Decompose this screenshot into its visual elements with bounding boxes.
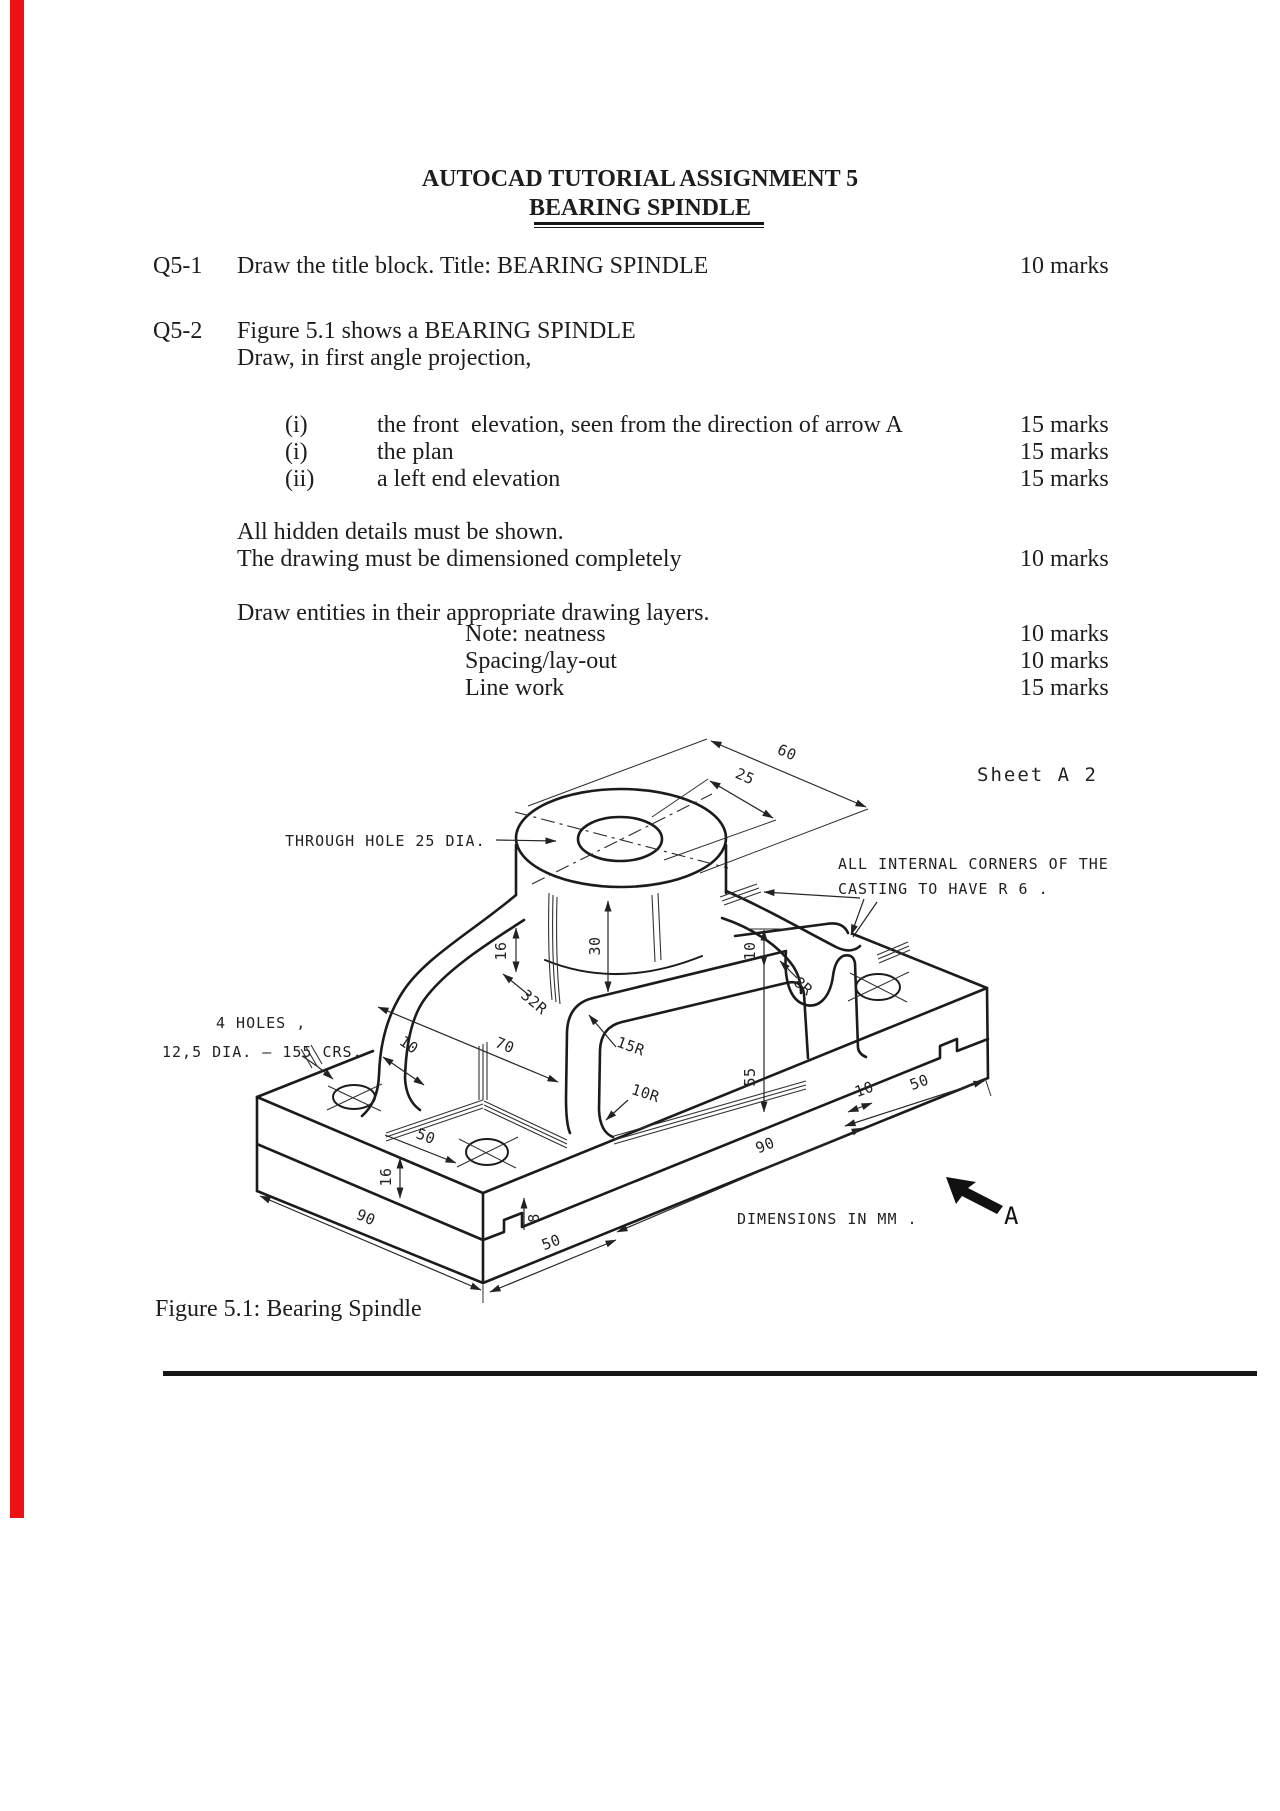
dim-16-base-label: 16 xyxy=(377,1167,395,1186)
dim-50-right-extension xyxy=(985,1078,991,1096)
dim-16-web-label: 16 xyxy=(492,941,510,960)
dim-30-label: 30 xyxy=(586,936,604,955)
arch-inner-outline xyxy=(599,982,808,1137)
cylinder-base-arc xyxy=(545,956,702,974)
dim-90-left-label: 90 xyxy=(354,1205,379,1229)
dim-10-step-label: 10 xyxy=(852,1078,876,1101)
dim-15r-leader xyxy=(589,1015,616,1047)
base-bottom-left-edge xyxy=(257,1191,483,1283)
dim-55-label: 55 xyxy=(741,1067,759,1086)
front-web-outer xyxy=(362,895,516,1116)
dim-25-extension-lines xyxy=(652,779,776,860)
centerline-1 xyxy=(515,812,728,868)
dim-10-step-line xyxy=(848,1103,872,1112)
dim-50-right-label: 50 xyxy=(907,1071,931,1094)
dim-10-web-line xyxy=(383,1057,424,1085)
dim-25-line xyxy=(710,781,773,818)
through-hole-leader xyxy=(496,840,556,841)
through-hole-annotation: THROUGH HOLE 25 DIA. xyxy=(285,832,486,850)
centerline-2 xyxy=(532,794,712,884)
document-page: AUTOCAD TUTORIAL ASSIGNMENT 5 BEARING SP… xyxy=(0,0,1280,1811)
base-right-edge xyxy=(987,988,988,1078)
view-arrow-label: A xyxy=(1004,1202,1019,1230)
bearing-spindle-figure: 60 25 30 16 32R 10 70 15R 10R 10 55 8R 1… xyxy=(0,0,1280,1811)
dim-50-mid-label: 50 xyxy=(414,1125,438,1149)
dim-15r-label: 15R xyxy=(614,1033,647,1060)
four-holes-line2: 12,5 DIA. — 155 CRS. xyxy=(162,1043,363,1061)
figure-caption: Figure 5.1: Bearing Spindle xyxy=(155,1296,422,1323)
dim-90-right-label: 90 xyxy=(753,1133,777,1157)
dim-10-web-label: 10 xyxy=(396,1032,422,1058)
view-arrow-icon xyxy=(946,1177,1003,1214)
dim-60-label: 60 xyxy=(775,740,800,764)
four-holes-line1: 4 HOLES , xyxy=(216,1014,306,1032)
bottom-rule xyxy=(163,1371,1257,1376)
dim-25-label: 25 xyxy=(733,764,758,788)
corners-note-line2: CASTING TO HAVE R 6 . xyxy=(838,880,1049,898)
corners-note-line1: ALL INTERNAL CORNERS OF THE xyxy=(838,855,1109,873)
dim-10-top-label: 10 xyxy=(741,941,759,960)
dimensions-in-mm-note: DIMENSIONS IN MM . xyxy=(737,1210,918,1228)
dim-8-notch-label: 8 xyxy=(525,1213,543,1223)
cylinder-top-ellipse xyxy=(516,789,726,887)
sheet-label: Sheet A 2 xyxy=(977,764,1098,786)
dim-32r-label: 32R xyxy=(517,986,551,1018)
dim-70-label: 70 xyxy=(493,1033,517,1057)
dim-10r-leader xyxy=(606,1100,628,1120)
base-top-back-right-edge xyxy=(853,934,987,988)
dim-10r-label: 10R xyxy=(629,1080,662,1106)
